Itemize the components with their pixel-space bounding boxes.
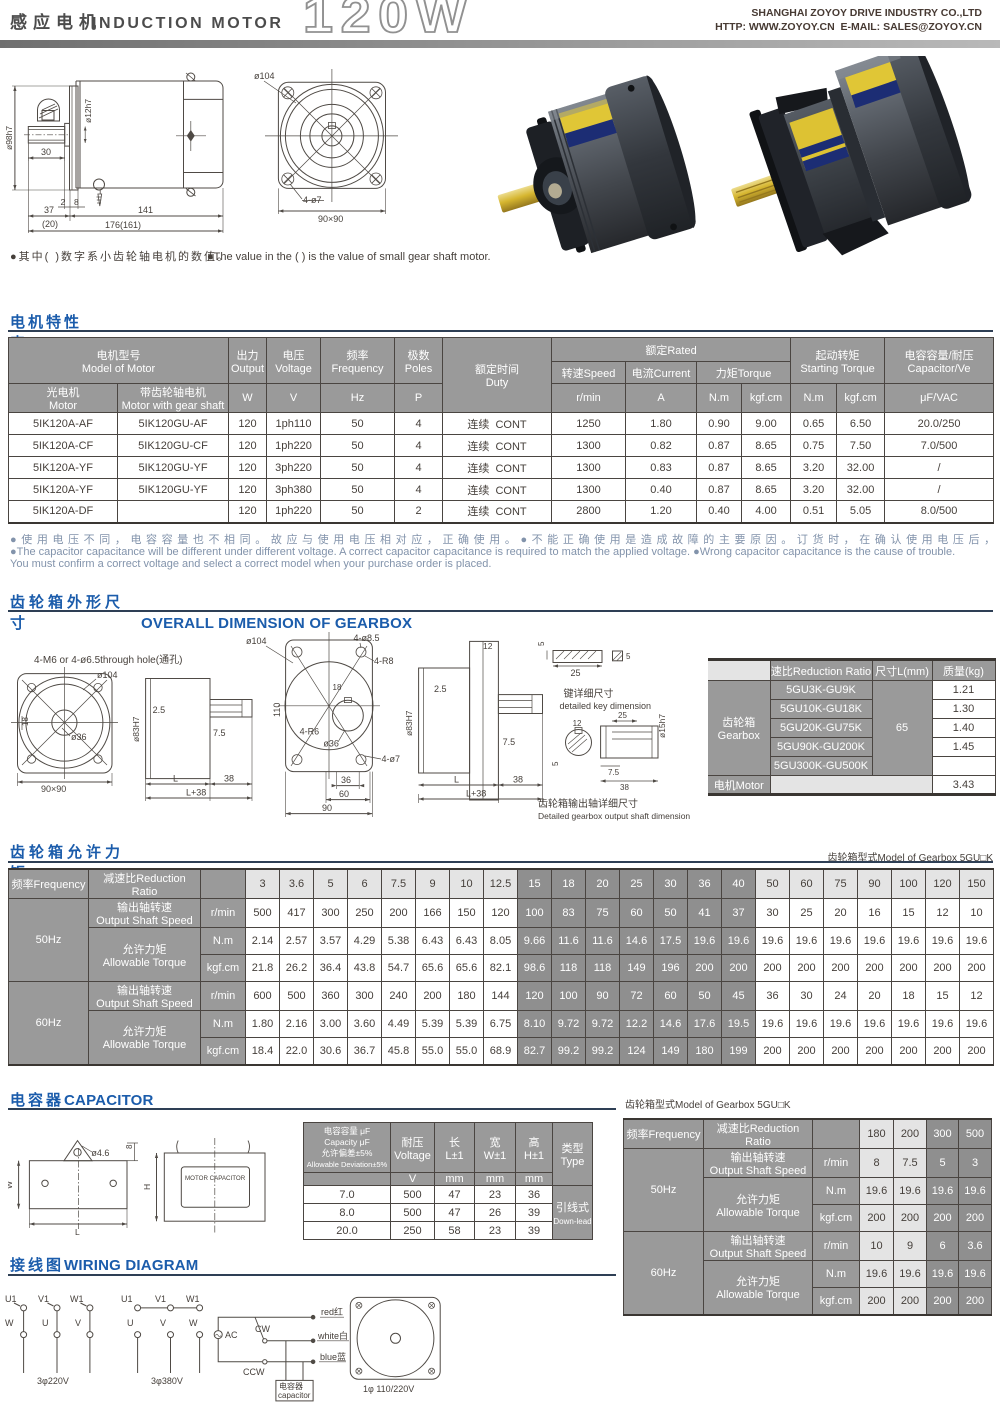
svg-text:AC: AC (225, 1330, 238, 1340)
svg-text:7.5: 7.5 (213, 728, 226, 738)
svg-text:W: W (189, 1318, 198, 1328)
svg-text:4-ø7: 4-ø7 (303, 195, 322, 205)
svg-text:blue蓝: blue蓝 (320, 1351, 346, 1362)
svg-text:V1: V1 (38, 1294, 49, 1304)
svg-text:90: 90 (322, 803, 332, 813)
svg-text:W1: W1 (70, 1294, 84, 1304)
svg-text:5: 5 (551, 761, 560, 766)
svg-text:7.5: 7.5 (503, 737, 516, 747)
svg-text:ø104: ø104 (254, 71, 275, 81)
svg-text:L+38: L+38 (186, 788, 206, 798)
svg-text:detailed key dimension: detailed key dimension (560, 701, 652, 711)
svg-text:7.5: 7.5 (608, 768, 620, 777)
svg-text:18: 18 (333, 683, 342, 692)
svg-text:white白: white白 (317, 1330, 348, 1341)
svg-text:ø98h7: ø98h7 (4, 126, 14, 150)
svg-text:Detailed gearbox output shaft: Detailed gearbox output shaft dimension (538, 811, 690, 821)
svg-text:4-R8: 4-R8 (374, 656, 394, 666)
svg-text:U: U (127, 1318, 134, 1328)
svg-text:V: V (75, 1318, 81, 1328)
svg-text:12: 12 (483, 641, 493, 651)
svg-text:12: 12 (573, 719, 582, 728)
svg-text:38: 38 (224, 774, 234, 784)
svg-text:CCW: CCW (243, 1367, 265, 1377)
svg-text:3φ380V: 3φ380V (151, 1376, 183, 1386)
svg-text:38: 38 (620, 783, 629, 792)
svg-text:ø104: ø104 (97, 670, 118, 680)
svg-text:H: H (142, 1184, 152, 1190)
svg-text:L: L (173, 774, 178, 784)
svg-text:U: U (42, 1318, 49, 1328)
svg-text:(20): (20) (42, 219, 58, 229)
svg-text:W: W (5, 1318, 14, 1328)
svg-text:red红: red红 (321, 1306, 343, 1317)
svg-text:60: 60 (339, 789, 349, 799)
svg-text:CW: CW (255, 1324, 270, 1334)
svg-text:ø36: ø36 (71, 732, 87, 742)
svg-text:4-M6 or 4-ø6.5through hole(通孔): 4-M6 or 4-ø6.5through hole(通孔) (34, 654, 182, 666)
svg-text:L: L (454, 775, 459, 785)
svg-text:8: 8 (125, 1144, 134, 1149)
svg-text:电容器: 电容器 (279, 1381, 303, 1391)
svg-text:MOTOR CAPACITOR: MOTOR CAPACITOR (185, 1175, 246, 1182)
svg-text:capacitor: capacitor (278, 1391, 311, 1400)
svg-text:36: 36 (341, 775, 351, 785)
svg-text:ø36: ø36 (323, 738, 339, 748)
svg-text:30: 30 (41, 147, 51, 157)
svg-text:90×90: 90×90 (41, 784, 66, 794)
svg-text:V1: V1 (155, 1294, 166, 1304)
svg-text:键详细尺寸: 键详细尺寸 (564, 687, 614, 700)
svg-text:V: V (160, 1318, 166, 1328)
svg-text:L+38: L+38 (466, 789, 486, 799)
svg-text:176(161): 176(161) (105, 220, 141, 230)
svg-text:18: 18 (21, 717, 30, 726)
svg-text:4-ø7: 4-ø7 (382, 754, 401, 764)
svg-text:5: 5 (626, 652, 631, 661)
svg-text:3φ220V: 3φ220V (37, 1376, 69, 1386)
svg-text:38: 38 (513, 775, 523, 785)
svg-text:90×90: 90×90 (318, 214, 343, 224)
svg-text:W1: W1 (186, 1294, 200, 1304)
svg-text:ø12h7: ø12h7 (83, 99, 93, 123)
svg-text:2.5: 2.5 (434, 684, 447, 694)
svg-text:ø83H7: ø83H7 (131, 716, 141, 742)
svg-text:4-ø8.5: 4-ø8.5 (354, 633, 380, 643)
svg-text:37: 37 (44, 205, 54, 215)
svg-text:2.5: 2.5 (153, 705, 166, 715)
svg-text:1φ 110/220V: 1φ 110/220V (363, 1384, 414, 1394)
svg-text:25: 25 (571, 668, 581, 678)
svg-text:4-R6: 4-R6 (300, 727, 320, 737)
svg-text:ø4.6: ø4.6 (91, 1148, 109, 1158)
svg-text:110: 110 (272, 703, 282, 717)
svg-text:U1: U1 (121, 1294, 133, 1304)
svg-text:ø15h7: ø15h7 (657, 714, 667, 738)
svg-text:W: W (8, 1181, 14, 1189)
svg-text:U1: U1 (5, 1294, 17, 1304)
svg-text:141: 141 (138, 205, 153, 215)
svg-text:齿轮箱输出轴详细尺寸: 齿轮箱输出轴详细尺寸 (538, 797, 638, 810)
svg-text:ø104: ø104 (246, 636, 267, 646)
svg-text:5: 5 (537, 641, 546, 646)
svg-text:25: 25 (618, 711, 627, 720)
svg-text:L: L (75, 1227, 80, 1237)
svg-text:ø83H7: ø83H7 (404, 710, 414, 736)
